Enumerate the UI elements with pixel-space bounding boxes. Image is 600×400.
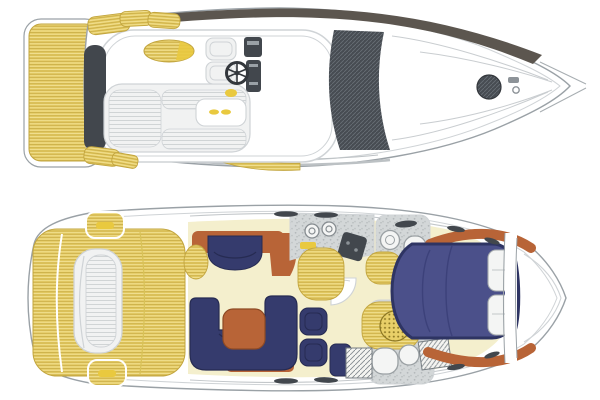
sun-pad (144, 40, 194, 62)
galley-teak-floor (298, 248, 344, 300)
forward-bulkhead (504, 233, 518, 363)
view-interior (28, 205, 566, 391)
day-head-sink (381, 231, 400, 250)
saloon-step-teak (184, 245, 208, 279)
helm-seat-1 (206, 38, 236, 60)
aft-head-toilet (372, 348, 398, 374)
yacht-deck-plans (0, 0, 600, 400)
transom-seat (74, 249, 122, 353)
sun-lounge-bottom-cushion (162, 129, 246, 149)
deck-hatch (477, 75, 501, 99)
yacht-deck-plan-image (0, 0, 600, 400)
helm-footrest (225, 89, 237, 97)
instrument-panel (244, 37, 262, 57)
saloon-table (223, 309, 265, 349)
aft-head-sink (399, 345, 419, 365)
flybridge-table (196, 99, 246, 126)
wardrobe-1 (346, 348, 372, 378)
sun-lounge-left-cushion (109, 90, 161, 147)
view-exterior (24, 8, 586, 171)
radar-arch-base (84, 45, 106, 151)
